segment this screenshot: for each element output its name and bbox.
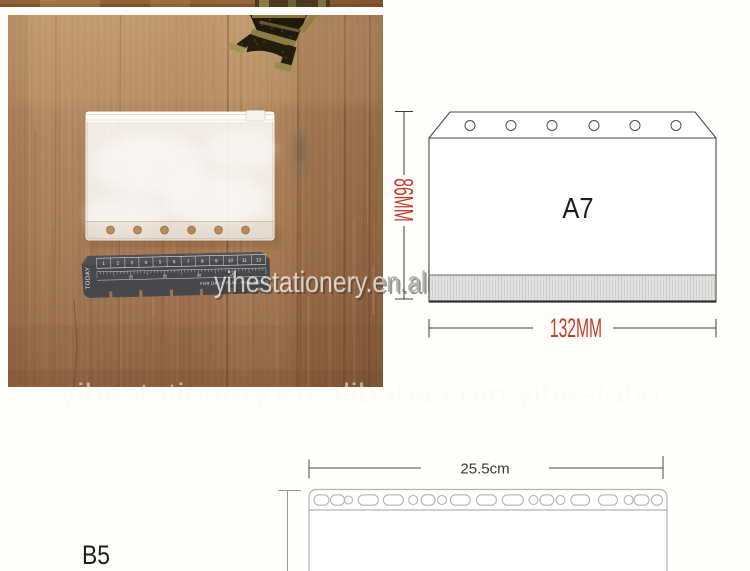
- svg-text:10: 10: [228, 258, 234, 264]
- svg-text:5: 5: [159, 260, 162, 266]
- svg-text:A7: A7: [562, 191, 593, 224]
- svg-text:9: 9: [215, 258, 218, 264]
- svg-text:86MM: 86MM: [388, 178, 419, 221]
- svg-text:TODAY: TODAY: [85, 267, 92, 290]
- svg-text:7: 7: [187, 259, 190, 265]
- svg-text:2: 2: [116, 261, 119, 267]
- svg-text:4: 4: [145, 260, 148, 266]
- svg-text:11: 11: [242, 258, 247, 264]
- svg-text:6: 6: [173, 259, 176, 265]
- svg-text:3: 3: [130, 260, 133, 266]
- svg-text:1: 1: [102, 261, 105, 267]
- svg-text:yihestationery.en.alibaba.com: yihestationery.en.alibaba.com yihestatio: [60, 378, 660, 411]
- svg-text:B5: B5: [82, 540, 110, 570]
- svg-text:132MM: 132MM: [550, 313, 602, 344]
- svg-text:8: 8: [201, 259, 204, 265]
- svg-text:12: 12: [256, 257, 262, 263]
- svg-text:25.5cm: 25.5cm: [460, 461, 509, 478]
